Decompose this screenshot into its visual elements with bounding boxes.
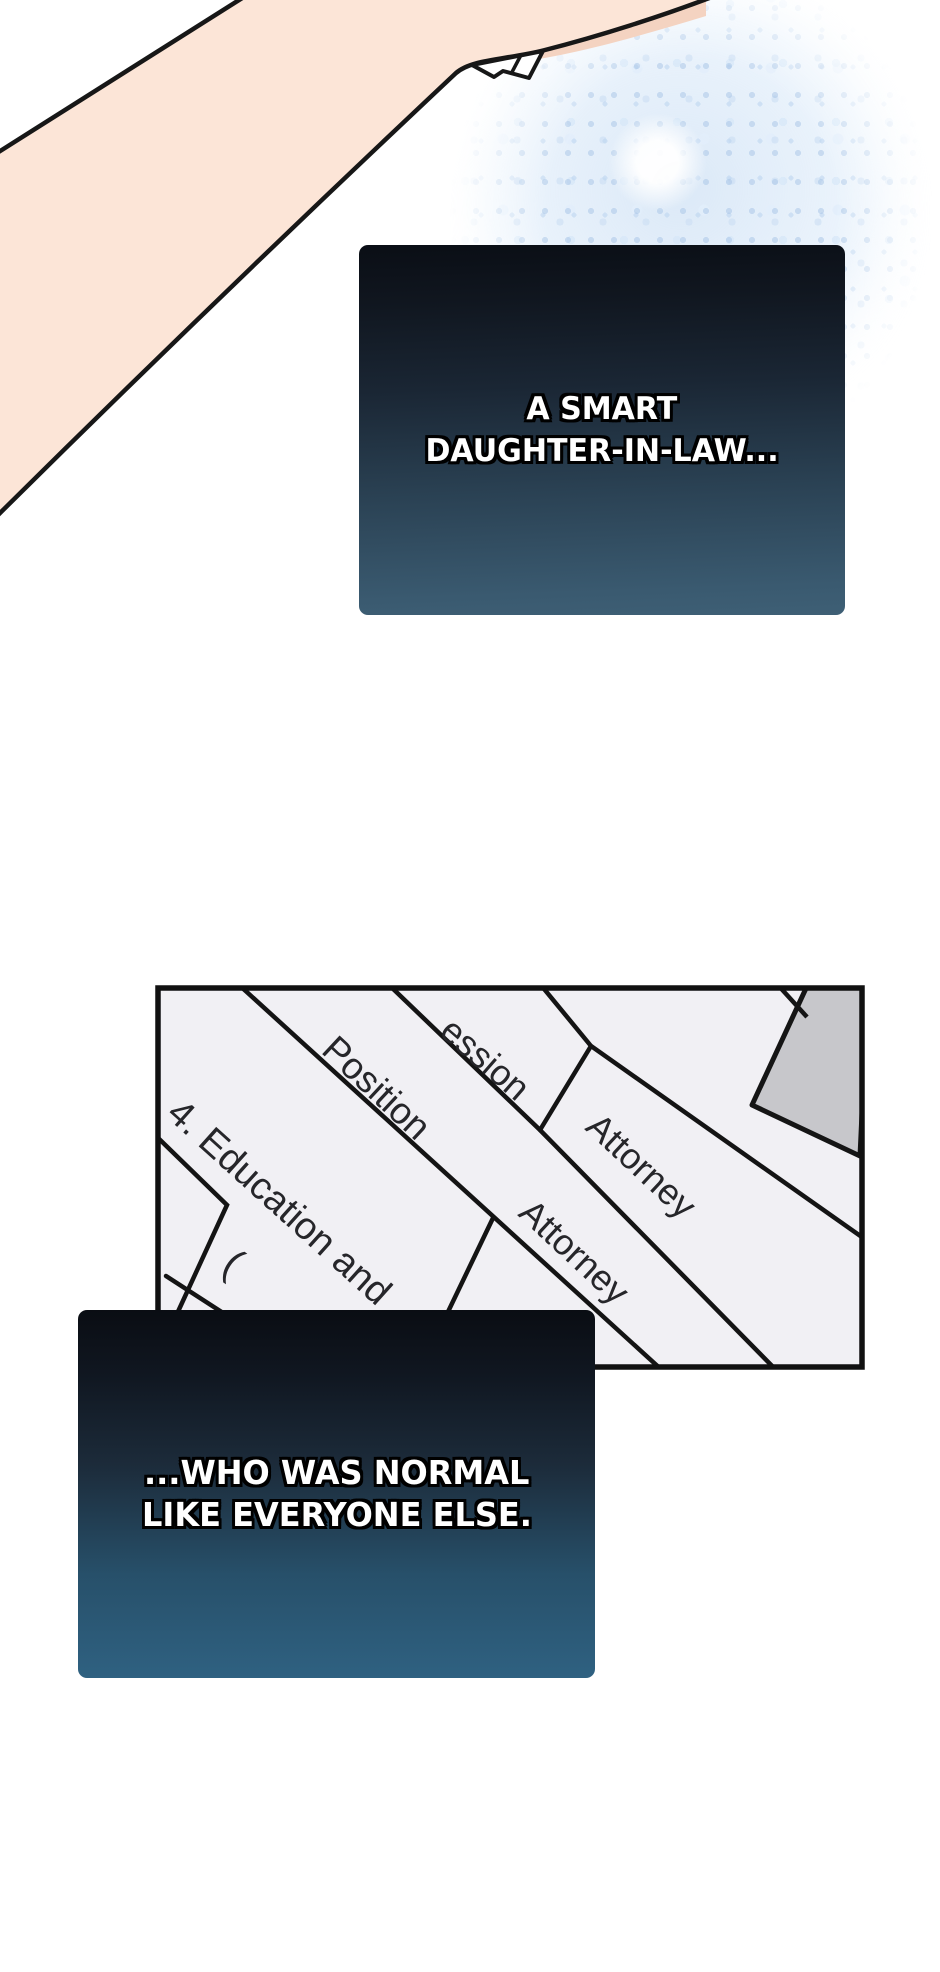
comic-page: ession Position Attorney Attorney 4. Edu… — [0, 0, 940, 1972]
narration-1-line-1: A SMART — [527, 388, 678, 430]
narration-2-line-2: LIKE EVERYONE ELSE. — [142, 1494, 532, 1536]
narration-box-1: A SMART DAUGHTER-IN-LAW... — [359, 245, 845, 615]
narration-1-line-2: DAUGHTER-IN-LAW... — [425, 430, 778, 472]
narration-box-2: ...WHO WAS NORMAL LIKE EVERYONE ELSE. — [78, 1310, 595, 1678]
narration-2-line-1: ...WHO WAS NORMAL — [144, 1452, 529, 1494]
